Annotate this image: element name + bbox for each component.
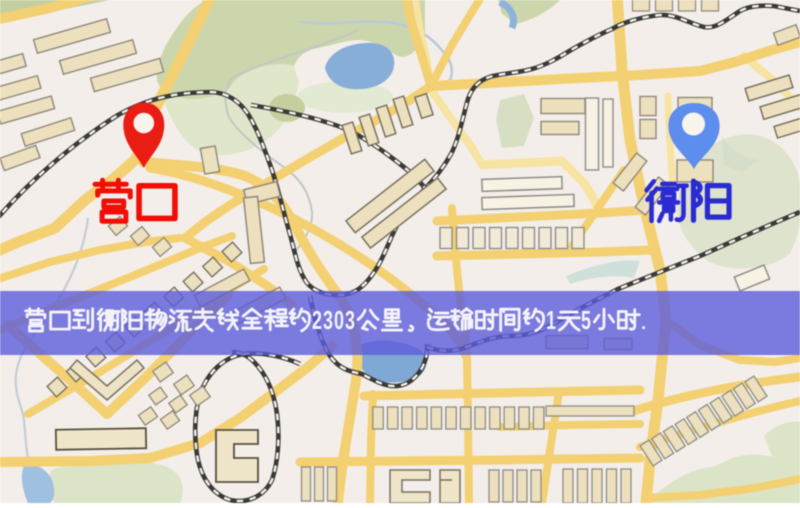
svg-text:3: 3: [345, 305, 355, 335]
svg-text:5: 5: [581, 305, 591, 335]
svg-text:2: 2: [312, 305, 322, 335]
svg-text:1: 1: [546, 305, 556, 335]
svg-text:0: 0: [334, 305, 344, 335]
svg-text:3: 3: [323, 305, 333, 335]
svg-text:.: .: [640, 305, 647, 335]
